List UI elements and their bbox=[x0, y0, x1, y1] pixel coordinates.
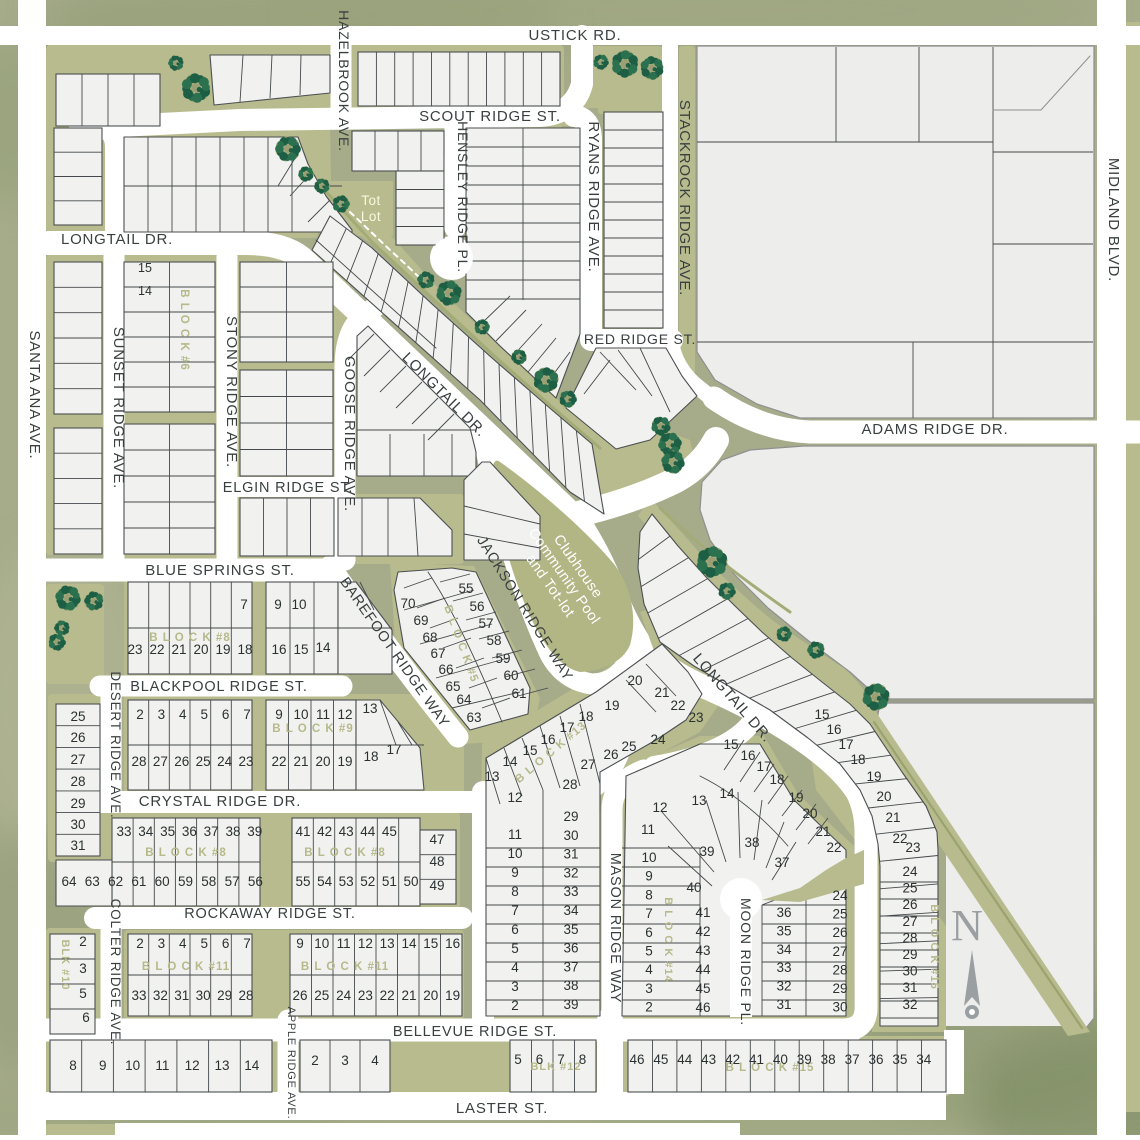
svg-text:MASON RIDGE WAY: MASON RIDGE WAY bbox=[607, 853, 623, 1004]
svg-text:20: 20 bbox=[315, 754, 330, 769]
svg-text:B L O C K #11: B L O C K #11 bbox=[142, 961, 230, 973]
svg-text:14: 14 bbox=[244, 1058, 260, 1073]
svg-text:13: 13 bbox=[691, 793, 706, 808]
svg-text:33: 33 bbox=[563, 884, 578, 899]
svg-text:59: 59 bbox=[495, 651, 510, 666]
svg-text:13: 13 bbox=[484, 769, 499, 784]
svg-text:19: 19 bbox=[445, 988, 460, 1003]
svg-text:ADAMS RIDGE DR.: ADAMS RIDGE DR. bbox=[861, 421, 1008, 438]
svg-text:11: 11 bbox=[641, 822, 655, 837]
svg-text:30: 30 bbox=[563, 828, 578, 843]
svg-text:10: 10 bbox=[314, 936, 329, 951]
svg-text:7: 7 bbox=[645, 906, 653, 921]
svg-text:SANTA ANA AVE.: SANTA ANA AVE. bbox=[26, 330, 43, 459]
svg-text:20: 20 bbox=[876, 789, 891, 804]
svg-text:BLK #10: BLK #10 bbox=[59, 939, 71, 990]
svg-text:27: 27 bbox=[153, 754, 168, 769]
svg-text:6: 6 bbox=[511, 922, 519, 937]
svg-text:23: 23 bbox=[358, 988, 373, 1003]
svg-text:21: 21 bbox=[885, 810, 900, 825]
svg-text:38: 38 bbox=[225, 824, 240, 839]
svg-text:12: 12 bbox=[185, 1058, 200, 1073]
svg-text:ROCKAWAY RIDGE ST.: ROCKAWAY RIDGE ST. bbox=[184, 906, 356, 922]
svg-text:35: 35 bbox=[563, 922, 578, 937]
svg-text:8: 8 bbox=[511, 884, 519, 899]
svg-text:40: 40 bbox=[773, 1052, 788, 1067]
svg-text:21: 21 bbox=[171, 642, 186, 657]
svg-text:32: 32 bbox=[902, 997, 917, 1012]
svg-text:14: 14 bbox=[719, 786, 735, 801]
svg-text:32: 32 bbox=[153, 988, 168, 1003]
svg-text:25: 25 bbox=[902, 881, 917, 896]
svg-text:B L O C K #8: B L O C K #8 bbox=[145, 847, 226, 859]
svg-text:18: 18 bbox=[237, 642, 252, 657]
svg-text:BLUE SPRINGS ST.: BLUE SPRINGS ST. bbox=[145, 562, 295, 579]
svg-text:41: 41 bbox=[695, 905, 710, 920]
svg-text:15: 15 bbox=[293, 642, 308, 657]
svg-text:ELGIN RIDGE ST.: ELGIN RIDGE ST. bbox=[223, 480, 353, 496]
svg-text:23: 23 bbox=[238, 754, 253, 769]
svg-text:29: 29 bbox=[563, 809, 578, 824]
svg-text:30: 30 bbox=[70, 817, 85, 832]
svg-text:10: 10 bbox=[293, 707, 308, 722]
svg-text:33: 33 bbox=[131, 988, 146, 1003]
svg-text:42: 42 bbox=[695, 924, 710, 939]
svg-text:Lot: Lot bbox=[361, 209, 381, 224]
svg-text:29: 29 bbox=[832, 981, 847, 996]
svg-text:B L O C K #14: B L O C K #14 bbox=[662, 897, 674, 983]
svg-text:49: 49 bbox=[429, 878, 444, 893]
svg-text:3: 3 bbox=[511, 979, 519, 994]
svg-text:23: 23 bbox=[905, 840, 920, 855]
svg-text:3: 3 bbox=[645, 981, 653, 996]
svg-text:11: 11 bbox=[508, 827, 522, 842]
svg-text:39: 39 bbox=[699, 844, 714, 859]
svg-text:43: 43 bbox=[695, 943, 710, 958]
svg-text:51: 51 bbox=[382, 874, 397, 889]
svg-text:27: 27 bbox=[832, 944, 847, 959]
svg-text:43: 43 bbox=[339, 824, 354, 839]
svg-text:69: 69 bbox=[413, 613, 428, 628]
svg-text:36: 36 bbox=[563, 941, 578, 956]
svg-text:16: 16 bbox=[826, 722, 841, 737]
svg-text:56: 56 bbox=[469, 599, 484, 614]
svg-text:22: 22 bbox=[149, 642, 164, 657]
svg-text:59: 59 bbox=[178, 874, 193, 889]
svg-text:28: 28 bbox=[70, 774, 85, 789]
svg-text:DESERT RIDGE AVE.: DESERT RIDGE AVE. bbox=[108, 671, 123, 818]
svg-text:2: 2 bbox=[645, 1000, 653, 1015]
svg-text:58: 58 bbox=[486, 633, 501, 648]
svg-text:60: 60 bbox=[503, 668, 518, 683]
svg-text:19: 19 bbox=[604, 698, 619, 713]
svg-text:28: 28 bbox=[832, 962, 847, 977]
svg-text:15: 15 bbox=[522, 743, 537, 758]
svg-text:28: 28 bbox=[131, 754, 146, 769]
svg-text:21: 21 bbox=[401, 988, 416, 1003]
svg-text:7: 7 bbox=[243, 707, 251, 722]
svg-text:39: 39 bbox=[247, 824, 262, 839]
svg-text:16: 16 bbox=[271, 642, 286, 657]
svg-text:45: 45 bbox=[695, 981, 710, 996]
svg-text:BELLEVUE RIDGE ST.: BELLEVUE RIDGE ST. bbox=[393, 1024, 557, 1040]
svg-text:Tot: Tot bbox=[361, 193, 381, 208]
svg-text:25: 25 bbox=[70, 709, 85, 724]
svg-text:9: 9 bbox=[296, 936, 304, 951]
svg-text:6: 6 bbox=[222, 707, 230, 722]
svg-text:34: 34 bbox=[776, 942, 792, 957]
svg-text:35: 35 bbox=[160, 824, 175, 839]
svg-text:2: 2 bbox=[511, 998, 519, 1013]
svg-text:25: 25 bbox=[621, 739, 636, 754]
svg-text:3: 3 bbox=[158, 936, 166, 951]
svg-text:16: 16 bbox=[445, 936, 460, 951]
svg-text:7: 7 bbox=[240, 597, 248, 612]
svg-text:28: 28 bbox=[562, 777, 577, 792]
svg-text:N: N bbox=[951, 901, 983, 950]
svg-text:4: 4 bbox=[371, 1053, 379, 1068]
svg-text:6: 6 bbox=[222, 936, 230, 951]
svg-text:14: 14 bbox=[502, 754, 518, 769]
svg-text:35: 35 bbox=[776, 923, 791, 938]
svg-text:23: 23 bbox=[127, 642, 142, 657]
svg-text:COLTER RIDGE AVE.: COLTER RIDGE AVE. bbox=[108, 899, 123, 1046]
svg-text:33: 33 bbox=[776, 960, 791, 975]
svg-text:24: 24 bbox=[832, 888, 848, 903]
svg-text:45: 45 bbox=[382, 824, 397, 839]
svg-text:38: 38 bbox=[821, 1052, 836, 1067]
svg-text:5: 5 bbox=[514, 1052, 522, 1067]
svg-text:2: 2 bbox=[136, 707, 144, 722]
svg-text:B L O C K #15: B L O C K #15 bbox=[928, 904, 940, 990]
svg-text:37: 37 bbox=[563, 959, 578, 974]
svg-text:57: 57 bbox=[478, 616, 493, 631]
svg-text:APPLE RIDGE AVE.: APPLE RIDGE AVE. bbox=[285, 1007, 297, 1120]
svg-text:16: 16 bbox=[740, 748, 755, 763]
svg-text:LASTER ST.: LASTER ST. bbox=[456, 1100, 548, 1117]
svg-text:STONY RIDGE AVE.: STONY RIDGE AVE. bbox=[223, 316, 240, 468]
svg-text:27: 27 bbox=[70, 752, 85, 767]
svg-text:SCOUT RIDGE ST.: SCOUT RIDGE ST. bbox=[419, 108, 561, 125]
svg-text:RED RIDGE ST.: RED RIDGE ST. bbox=[584, 331, 696, 347]
svg-text:24: 24 bbox=[217, 754, 233, 769]
svg-text:19: 19 bbox=[337, 754, 352, 769]
svg-text:64: 64 bbox=[456, 692, 472, 707]
svg-text:25: 25 bbox=[314, 988, 329, 1003]
svg-text:67: 67 bbox=[430, 646, 445, 661]
svg-text:11: 11 bbox=[316, 707, 330, 722]
svg-text:50: 50 bbox=[403, 874, 418, 889]
svg-text:31: 31 bbox=[776, 997, 791, 1012]
svg-text:6: 6 bbox=[536, 1052, 544, 1067]
svg-text:6: 6 bbox=[82, 1010, 90, 1025]
svg-text:12: 12 bbox=[337, 707, 352, 722]
svg-text:34: 34 bbox=[563, 903, 579, 918]
svg-text:64: 64 bbox=[61, 874, 77, 889]
svg-text:16: 16 bbox=[540, 732, 555, 747]
svg-text:44: 44 bbox=[695, 962, 711, 977]
svg-text:55: 55 bbox=[458, 581, 473, 596]
svg-text:19: 19 bbox=[866, 769, 881, 784]
svg-text:10: 10 bbox=[291, 597, 306, 612]
svg-text:36: 36 bbox=[776, 905, 791, 920]
svg-text:58: 58 bbox=[201, 874, 216, 889]
svg-text:63: 63 bbox=[466, 710, 481, 725]
svg-text:13: 13 bbox=[380, 936, 395, 951]
svg-text:MIDLAND BLVD.: MIDLAND BLVD. bbox=[1105, 158, 1122, 282]
svg-text:63: 63 bbox=[85, 874, 100, 889]
svg-text:34: 34 bbox=[916, 1052, 932, 1067]
svg-text:10: 10 bbox=[125, 1058, 140, 1073]
svg-text:13: 13 bbox=[362, 701, 377, 716]
svg-text:7: 7 bbox=[557, 1052, 565, 1067]
svg-text:BLACKPOOL RIDGE ST.: BLACKPOOL RIDGE ST. bbox=[130, 679, 307, 695]
svg-text:62: 62 bbox=[108, 874, 123, 889]
svg-text:29: 29 bbox=[217, 988, 232, 1003]
svg-text:26: 26 bbox=[292, 988, 307, 1003]
svg-text:9: 9 bbox=[275, 707, 283, 722]
svg-text:5: 5 bbox=[645, 944, 653, 959]
svg-text:57: 57 bbox=[225, 874, 240, 889]
svg-text:27: 27 bbox=[902, 914, 917, 929]
svg-text:8: 8 bbox=[645, 887, 653, 902]
svg-text:56: 56 bbox=[248, 874, 263, 889]
svg-text:CRYSTAL RIDGE DR.: CRYSTAL RIDGE DR. bbox=[139, 793, 302, 810]
svg-text:18: 18 bbox=[850, 752, 865, 767]
svg-text:36: 36 bbox=[182, 824, 197, 839]
svg-text:53: 53 bbox=[339, 874, 354, 889]
svg-text:27: 27 bbox=[580, 757, 595, 772]
svg-text:24: 24 bbox=[336, 988, 352, 1003]
svg-text:2: 2 bbox=[79, 934, 87, 949]
svg-text:29: 29 bbox=[70, 796, 85, 811]
svg-text:30: 30 bbox=[832, 1000, 847, 1015]
svg-text:14: 14 bbox=[401, 936, 417, 951]
svg-text:55: 55 bbox=[295, 874, 310, 889]
svg-text:31: 31 bbox=[563, 847, 578, 862]
svg-text:17: 17 bbox=[386, 742, 401, 757]
svg-text:52: 52 bbox=[360, 874, 375, 889]
svg-text:39: 39 bbox=[797, 1052, 812, 1067]
svg-text:28: 28 bbox=[238, 988, 253, 1003]
svg-text:4: 4 bbox=[179, 707, 187, 722]
svg-text:15: 15 bbox=[814, 707, 829, 722]
svg-text:19: 19 bbox=[215, 642, 230, 657]
svg-text:22: 22 bbox=[826, 840, 841, 855]
svg-text:USTICK RD.: USTICK RD. bbox=[528, 27, 621, 44]
svg-text:B L O C K #9: B L O C K #9 bbox=[272, 723, 353, 735]
svg-text:24: 24 bbox=[902, 864, 918, 879]
svg-text:43: 43 bbox=[701, 1052, 716, 1067]
svg-text:37: 37 bbox=[774, 855, 789, 870]
svg-text:11: 11 bbox=[337, 936, 351, 951]
svg-text:12: 12 bbox=[652, 800, 667, 815]
svg-text:3: 3 bbox=[79, 961, 87, 976]
svg-text:HENSLEY RIDGE PL.: HENSLEY RIDGE PL. bbox=[455, 121, 471, 273]
svg-text:31: 31 bbox=[70, 838, 85, 853]
svg-text:5: 5 bbox=[79, 986, 87, 1001]
svg-text:34: 34 bbox=[138, 824, 154, 839]
svg-text:9: 9 bbox=[274, 597, 282, 612]
svg-text:26: 26 bbox=[603, 747, 618, 762]
svg-text:9: 9 bbox=[511, 865, 519, 880]
svg-text:10: 10 bbox=[641, 850, 656, 865]
svg-text:26: 26 bbox=[902, 897, 917, 912]
svg-text:9: 9 bbox=[99, 1058, 107, 1073]
svg-text:7: 7 bbox=[511, 903, 519, 918]
svg-text:14: 14 bbox=[315, 640, 331, 655]
svg-text:61: 61 bbox=[511, 686, 526, 701]
svg-text:8: 8 bbox=[579, 1052, 587, 1067]
svg-text:48: 48 bbox=[429, 854, 444, 869]
svg-text:4: 4 bbox=[179, 936, 187, 951]
svg-text:15: 15 bbox=[423, 936, 438, 951]
svg-text:5: 5 bbox=[200, 707, 208, 722]
svg-text:31: 31 bbox=[174, 988, 189, 1003]
svg-text:22: 22 bbox=[670, 698, 685, 713]
svg-text:21: 21 bbox=[654, 685, 669, 700]
svg-text:25: 25 bbox=[832, 907, 847, 922]
svg-text:44: 44 bbox=[677, 1052, 693, 1067]
svg-text:15: 15 bbox=[723, 737, 738, 752]
svg-text:12: 12 bbox=[358, 936, 373, 951]
svg-text:15: 15 bbox=[138, 261, 152, 275]
svg-text:14: 14 bbox=[138, 284, 152, 298]
svg-text:18: 18 bbox=[363, 749, 378, 764]
svg-text:30: 30 bbox=[902, 964, 917, 979]
svg-text:RYANS RIDGE AVE.: RYANS RIDGE AVE. bbox=[585, 121, 602, 272]
svg-text:28: 28 bbox=[902, 930, 917, 945]
svg-text:41: 41 bbox=[295, 824, 310, 839]
svg-text:70: 70 bbox=[400, 596, 415, 611]
svg-text:MOON RIDGE PL.: MOON RIDGE PL. bbox=[738, 898, 754, 1026]
svg-text:42: 42 bbox=[317, 824, 332, 839]
svg-text:41: 41 bbox=[749, 1052, 764, 1067]
svg-text:11: 11 bbox=[155, 1058, 169, 1073]
svg-text:12: 12 bbox=[507, 790, 522, 805]
svg-text:42: 42 bbox=[725, 1052, 740, 1067]
svg-text:26: 26 bbox=[174, 754, 189, 769]
svg-text:17: 17 bbox=[838, 737, 853, 752]
svg-text:8: 8 bbox=[69, 1058, 77, 1073]
svg-text:5: 5 bbox=[511, 941, 519, 956]
svg-text:36: 36 bbox=[868, 1052, 883, 1067]
svg-text:68: 68 bbox=[422, 630, 437, 645]
svg-text:40: 40 bbox=[686, 880, 701, 895]
svg-text:37: 37 bbox=[204, 824, 219, 839]
svg-text:6: 6 bbox=[645, 925, 653, 940]
svg-text:46: 46 bbox=[695, 1000, 710, 1015]
svg-text:26: 26 bbox=[832, 925, 847, 940]
svg-text:66: 66 bbox=[438, 662, 453, 677]
svg-text:B L O C K #8: B L O C K #8 bbox=[304, 847, 385, 859]
svg-text:38: 38 bbox=[744, 835, 759, 850]
svg-text:13: 13 bbox=[214, 1058, 229, 1073]
svg-text:10: 10 bbox=[507, 846, 522, 861]
svg-text:23: 23 bbox=[688, 710, 703, 725]
svg-text:54: 54 bbox=[317, 874, 333, 889]
svg-text:4: 4 bbox=[511, 960, 519, 975]
svg-text:25: 25 bbox=[196, 754, 211, 769]
svg-text:29: 29 bbox=[902, 947, 917, 962]
svg-text:HAZELBROOK AVE.: HAZELBROOK AVE. bbox=[336, 10, 352, 152]
svg-text:37: 37 bbox=[845, 1052, 860, 1067]
svg-text:60: 60 bbox=[155, 874, 170, 889]
svg-text:2: 2 bbox=[136, 936, 144, 951]
svg-text:2: 2 bbox=[311, 1053, 319, 1068]
svg-text:SUNSET RIDGE AVE.: SUNSET RIDGE AVE. bbox=[110, 327, 127, 489]
svg-text:31: 31 bbox=[902, 980, 917, 995]
svg-text:35: 35 bbox=[892, 1052, 907, 1067]
svg-text:22: 22 bbox=[380, 988, 395, 1003]
svg-text:22: 22 bbox=[271, 754, 286, 769]
svg-text:26: 26 bbox=[70, 730, 85, 745]
svg-text:20: 20 bbox=[193, 642, 208, 657]
svg-text:38: 38 bbox=[563, 978, 578, 993]
svg-text:20: 20 bbox=[627, 673, 642, 688]
svg-text:45: 45 bbox=[653, 1052, 668, 1067]
svg-text:17: 17 bbox=[559, 720, 574, 735]
svg-text:B L O C K #6: B L O C K #6 bbox=[178, 289, 190, 370]
svg-text:4: 4 bbox=[645, 962, 653, 977]
svg-text:STACKROCK RIDGE AVE.: STACKROCK RIDGE AVE. bbox=[676, 100, 693, 296]
svg-text:39: 39 bbox=[563, 997, 578, 1012]
svg-text:61: 61 bbox=[131, 874, 146, 889]
svg-text:20: 20 bbox=[423, 988, 438, 1003]
svg-text:5: 5 bbox=[200, 936, 208, 951]
svg-text:LONGTAIL DR.: LONGTAIL DR. bbox=[61, 231, 173, 248]
svg-text:44: 44 bbox=[360, 824, 376, 839]
svg-text:3: 3 bbox=[341, 1053, 349, 1068]
svg-text:9: 9 bbox=[645, 869, 653, 884]
svg-text:46: 46 bbox=[629, 1052, 644, 1067]
svg-text:24: 24 bbox=[650, 732, 666, 747]
svg-text:3: 3 bbox=[158, 707, 166, 722]
svg-text:18: 18 bbox=[578, 709, 593, 724]
svg-text:30: 30 bbox=[196, 988, 211, 1003]
svg-text:B L O C K #11: B L O C K #11 bbox=[301, 961, 389, 973]
svg-text:7: 7 bbox=[243, 936, 251, 951]
svg-text:47: 47 bbox=[429, 832, 444, 847]
svg-text:21: 21 bbox=[293, 754, 308, 769]
svg-text:32: 32 bbox=[776, 979, 791, 994]
svg-text:32: 32 bbox=[563, 865, 578, 880]
svg-text:33: 33 bbox=[116, 824, 131, 839]
